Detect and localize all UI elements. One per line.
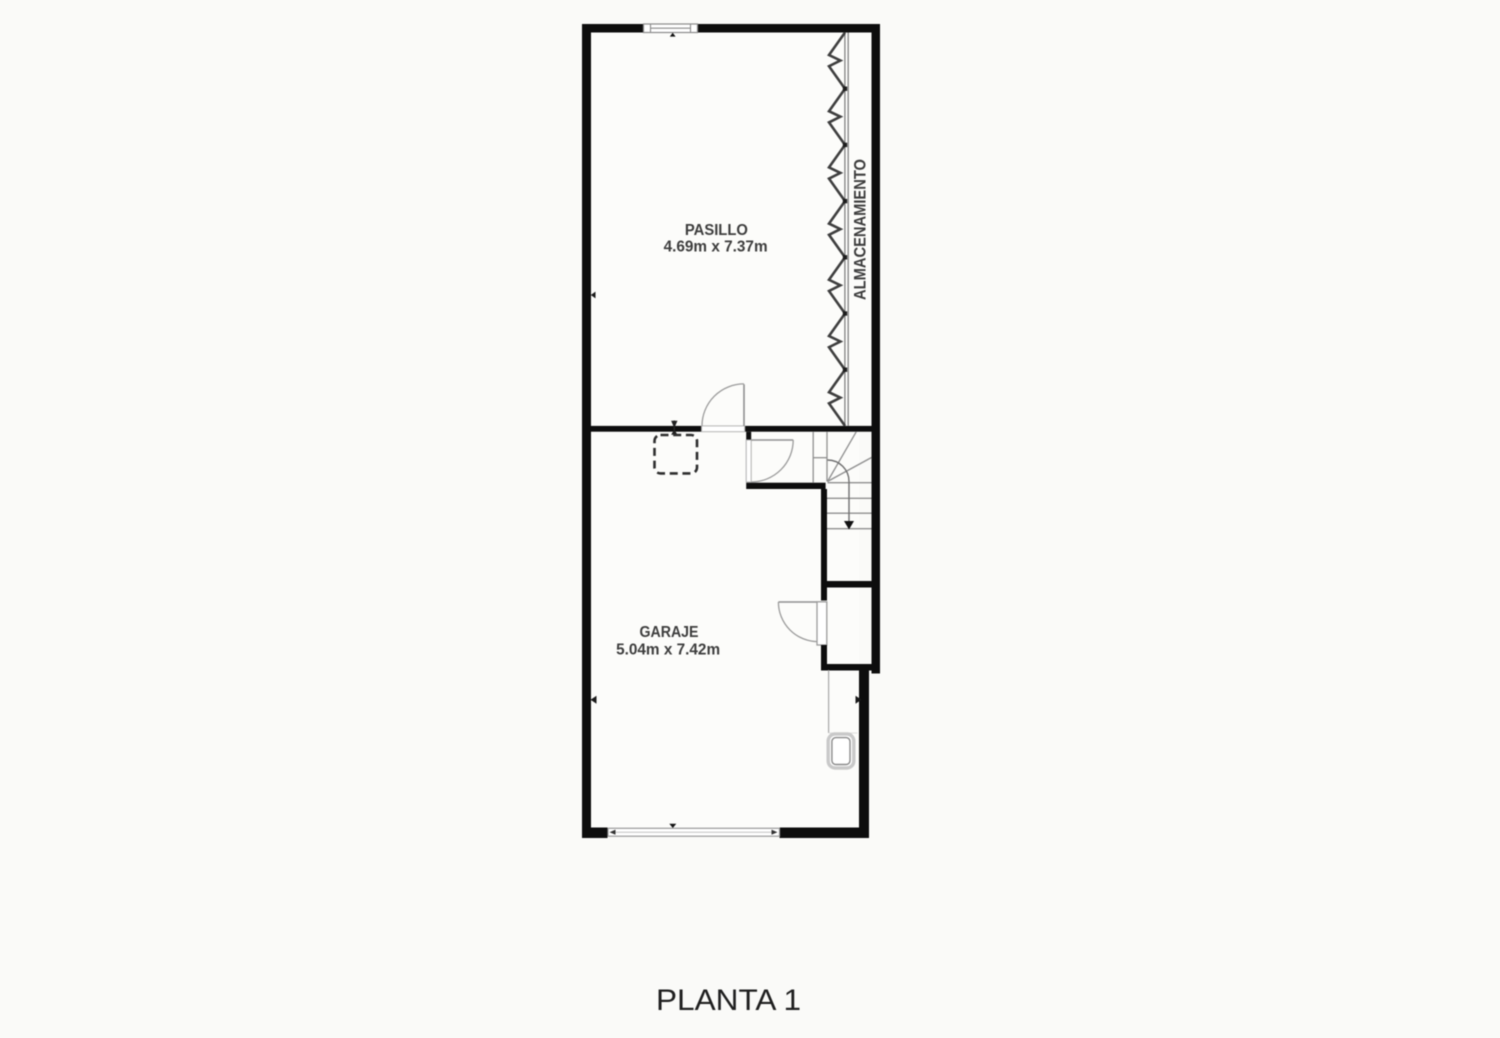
svg-text:GARAJE: GARAJE	[640, 624, 699, 641]
svg-text:PASILLO: PASILLO	[685, 222, 748, 239]
svg-text:ALMACENAMIENTO: ALMACENAMIENTO	[851, 159, 869, 300]
svg-text:5.04m x 7.42m: 5.04m x 7.42m	[616, 641, 720, 658]
svg-text:4.69m x 7.37m: 4.69m x 7.37m	[664, 239, 768, 256]
svg-text:PLANTA 1: PLANTA 1	[656, 984, 801, 1017]
